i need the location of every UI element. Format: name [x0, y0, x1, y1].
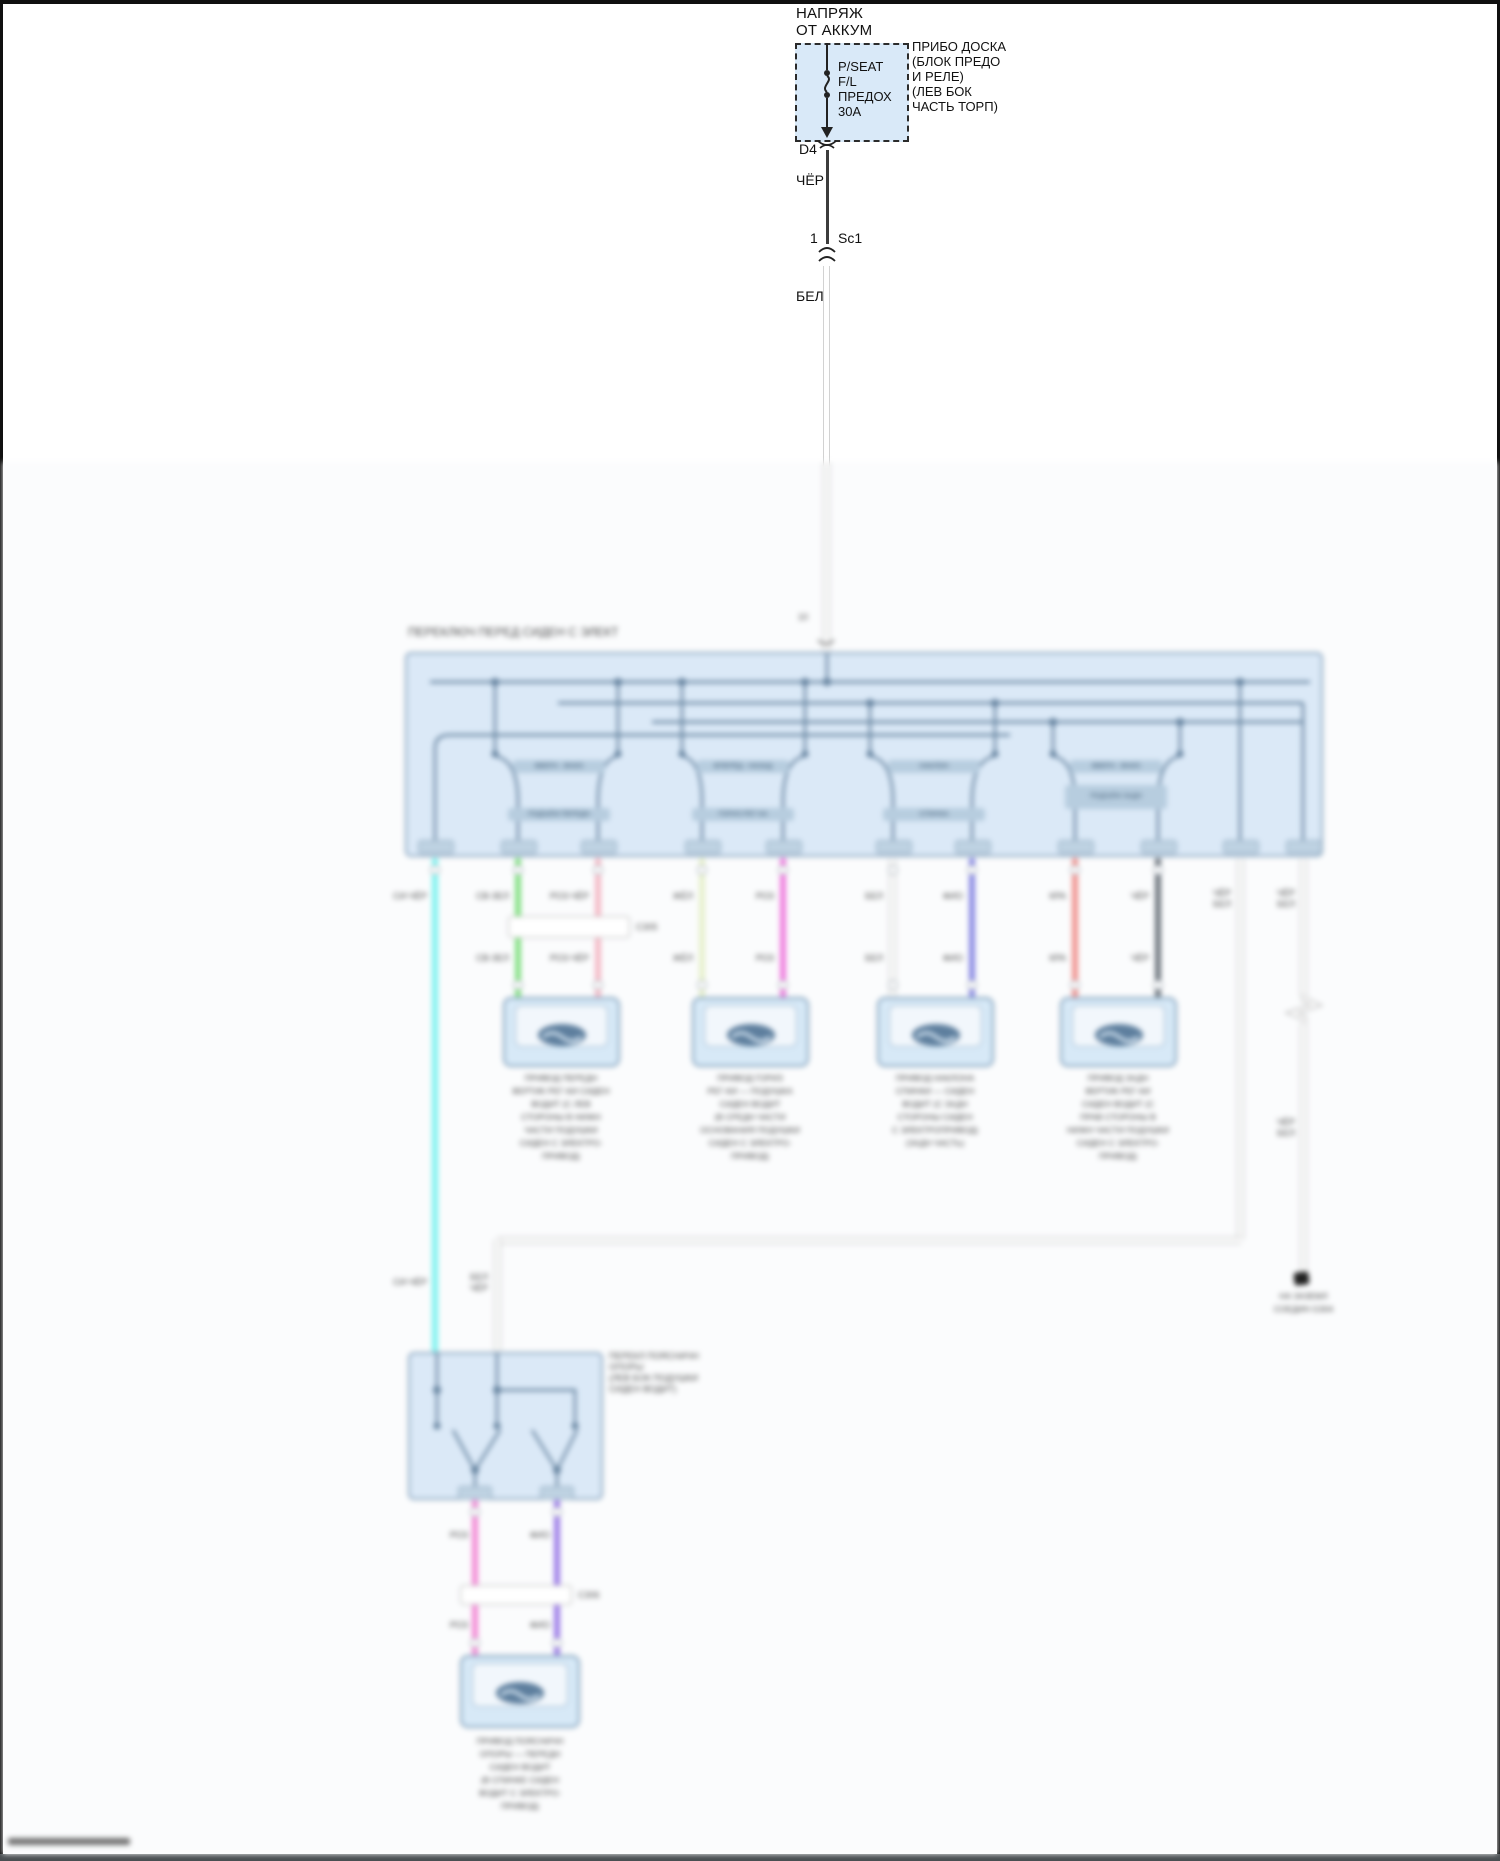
pin-chip [458, 1486, 492, 1500]
wire-label: СВ-ЗЕЛ [441, 891, 509, 902]
wire-label: ЧЁР [1081, 953, 1149, 964]
wire-white-m3 [889, 858, 896, 997]
block-entry-pin-label: 10 [798, 612, 808, 623]
inline-connector-label: С305 [636, 922, 658, 933]
fusebox-location-line1: ПРИБО ДОСКА [912, 39, 1006, 54]
switch-chip-g4-up: ВВЕРХ - ВНИЗ [1070, 760, 1162, 773]
main-switch-title: ПЕРЕКЛЮЧ ПЕРЕД СИДЕН С ЭЛЕКТ [408, 625, 619, 639]
page-border-bottom [0, 1854, 1500, 1861]
ground-caption: НА ЗАЗЕМЛ СОЕДИН G304 [1236, 1290, 1371, 1316]
watermark-blob [8, 1838, 130, 1845]
pin-chip [685, 840, 721, 854]
splice-icon [816, 246, 838, 266]
wire-label: ФИО [895, 891, 963, 902]
wire-label: СВ-ЗЕЛ [441, 953, 509, 964]
switch-chip-g2-up: ВПЕРЁД - НАЗАД [697, 760, 789, 773]
wire-dark [1155, 858, 1161, 997]
pin-chip [581, 840, 617, 854]
motor-icon [907, 1020, 965, 1050]
wire-label-2line: БЕЛ ЧЁР [420, 1272, 488, 1294]
pin-chip [766, 840, 802, 854]
wire-label-2line: ЧЁР БЕЛ [1163, 888, 1231, 910]
wire-label: ЖЁЛ [625, 891, 693, 902]
white-wire-segment-blurred [823, 462, 830, 654]
lumbar-switch-label: ПЕРЕКЛ ПОЯСНИЧН ОПОРЫ (ЛЕВ БОК ПОДУШКИ С… [609, 1351, 699, 1395]
fuse-name-line2: F/L [838, 74, 857, 89]
battery-feed-label-line1: НАПРЯЖ [796, 6, 863, 22]
wiring-diagram-page: НАПРЯЖ ОТ АККУМ P/SEAT F/L ПРЕДОХ 30А ПР… [0, 0, 1500, 1861]
wire-label: РОЗ [706, 891, 774, 902]
switch-chip-g4-low: ПОДЪЁМ ЗАДН [1065, 785, 1167, 809]
inline-connector [460, 1585, 572, 1605]
wire-label: ЧЁР [1081, 891, 1149, 902]
motor-caption-m4: ПРИВОД ЗАДНВЕРТИК РЕГ-КИ СИДЕН ВОДИТ (СП… [1038, 1072, 1198, 1163]
fusebox-location-line2: (БЛОК ПРЕДО [912, 54, 1000, 69]
wire-label: СИ-ЧЁР [352, 891, 427, 902]
ground-wire-label-2line: ЧЁР БЕЛ [1227, 1117, 1295, 1139]
black-wire-color-label: ЧЁР [796, 172, 824, 188]
wire-label: БЕЛ [815, 953, 883, 964]
page-border-top [0, 0, 1500, 4]
white-wire-color-label: БЕЛ [796, 288, 824, 304]
wire-label: РОЗ-ЧЁР [521, 891, 589, 902]
wire-label: РОЗ [400, 1530, 468, 1541]
motor-icon [491, 1678, 549, 1708]
motor-icon [533, 1020, 591, 1050]
white-wire-segment-sharp [823, 266, 830, 476]
pin-chip [876, 840, 912, 854]
motor-caption-m5: ПРИВОД ПОЯСНИЧНОПОРЫ — ПЕРЕДН СИДЕН ВОДИ… [440, 1735, 600, 1813]
battery-feed-label-line2: ОТ АККУМ [796, 23, 872, 39]
switch-internal-circuit [405, 652, 1323, 857]
wire-white-route-drop [494, 1239, 501, 1352]
pin-chip [1286, 840, 1322, 854]
lumbar-switch-internal-circuit [408, 1352, 603, 1500]
pin-chip [540, 1486, 574, 1500]
black-wire-segment [826, 150, 829, 244]
connector-pin-label: D4 [799, 141, 817, 157]
wire-white-ground-upper [1300, 858, 1307, 996]
wire-rose [780, 858, 786, 997]
wire-label: РОЗ [400, 1620, 468, 1631]
inline-connector [508, 916, 630, 938]
wire-label: ФИО [482, 1620, 550, 1631]
motor-icon [722, 1020, 780, 1050]
inline-connector-label: С306 [578, 1590, 600, 1601]
wire-label: ФИО [895, 953, 963, 964]
wire-violet [969, 858, 975, 997]
pin-chip [1141, 840, 1177, 854]
wire-white-route-horizontal [497, 1237, 1241, 1244]
block-entry-connector-icon [816, 638, 836, 650]
motor-caption-m1: ПРИВОД ПЕРЕДНВЕРТИК РЕГ-КИ СИДЕН ВОДИТ (… [481, 1072, 641, 1163]
wire-label: ФИО [482, 1530, 550, 1541]
motor-caption-m2: ПРИВОД ГОРИЗРЕГ-КИ — ПОДУШКА СИДЕН ВОДИТ… [670, 1072, 830, 1163]
wire-pale-yellow [699, 858, 705, 997]
switch-chip-g3-low: СПИНКА [883, 808, 985, 821]
wire-label-2line: ЧЁР БЕЛ [1227, 888, 1295, 910]
switch-chip-g3-up: НАКЛОН [888, 760, 980, 773]
fusebox-location-line3: И РЕЛЕ) [912, 69, 964, 84]
switch-chip-g1-low: ПОДЪЁМ ПЕРЕДН [508, 808, 610, 821]
fuse-name-line3: ПРЕДОХ [838, 89, 892, 104]
pin-chip [1223, 840, 1259, 854]
wire-label: БЕЛ [815, 891, 883, 902]
fusebox-location-line4: (ЛЕВ БОК [912, 84, 972, 99]
pin-chip [1058, 840, 1094, 854]
wire-magenta [472, 1500, 478, 1655]
motor-caption-m3: ПРИВОД НАКЛОНАСПИНКИ — СИДЕН ВОДИТ (С ЗА… [855, 1072, 1015, 1150]
ground-point-icon [1293, 1271, 1309, 1285]
wire-break-icon [1285, 994, 1323, 1026]
switch-chip-g2-low: ГОРИЗ РЕГ-КА [692, 808, 794, 821]
motor-icon [1090, 1020, 1148, 1050]
wire-label: КРА [998, 891, 1066, 902]
pin-chip [955, 840, 991, 854]
wire-white-route-vertical [1237, 858, 1244, 1240]
blurred-diagram-region: 10 ПЕРЕКЛЮЧ ПЕРЕД СИДЕН С ЭЛЕКТ [3, 462, 1497, 1854]
splice-name-label: Sc1 [838, 230, 862, 246]
wire-label: РОЗ [706, 953, 774, 964]
wire-label: ЖЁЛ [625, 953, 693, 964]
wire-label: СИ-ЧЁР [355, 1277, 427, 1288]
switch-chip-g1-up: ВВЕРХ - ВНИЗ [513, 760, 605, 773]
splice-pin-label: 1 [810, 230, 818, 246]
pin-chip [501, 840, 537, 854]
wire-white-ground-lower [1300, 1024, 1307, 1282]
wire-red [1072, 858, 1078, 997]
fusebox-location-line5: ЧАСТЬ ТОРП) [912, 99, 998, 114]
wire-purple [554, 1500, 560, 1655]
fuse-rating-label: 30А [838, 104, 861, 119]
pin-chip [418, 840, 454, 854]
wire-label: КРА [998, 953, 1066, 964]
fuse-name-line1: P/SEAT [838, 59, 883, 74]
wire-label: РОЗ-ЧЁР [521, 953, 589, 964]
